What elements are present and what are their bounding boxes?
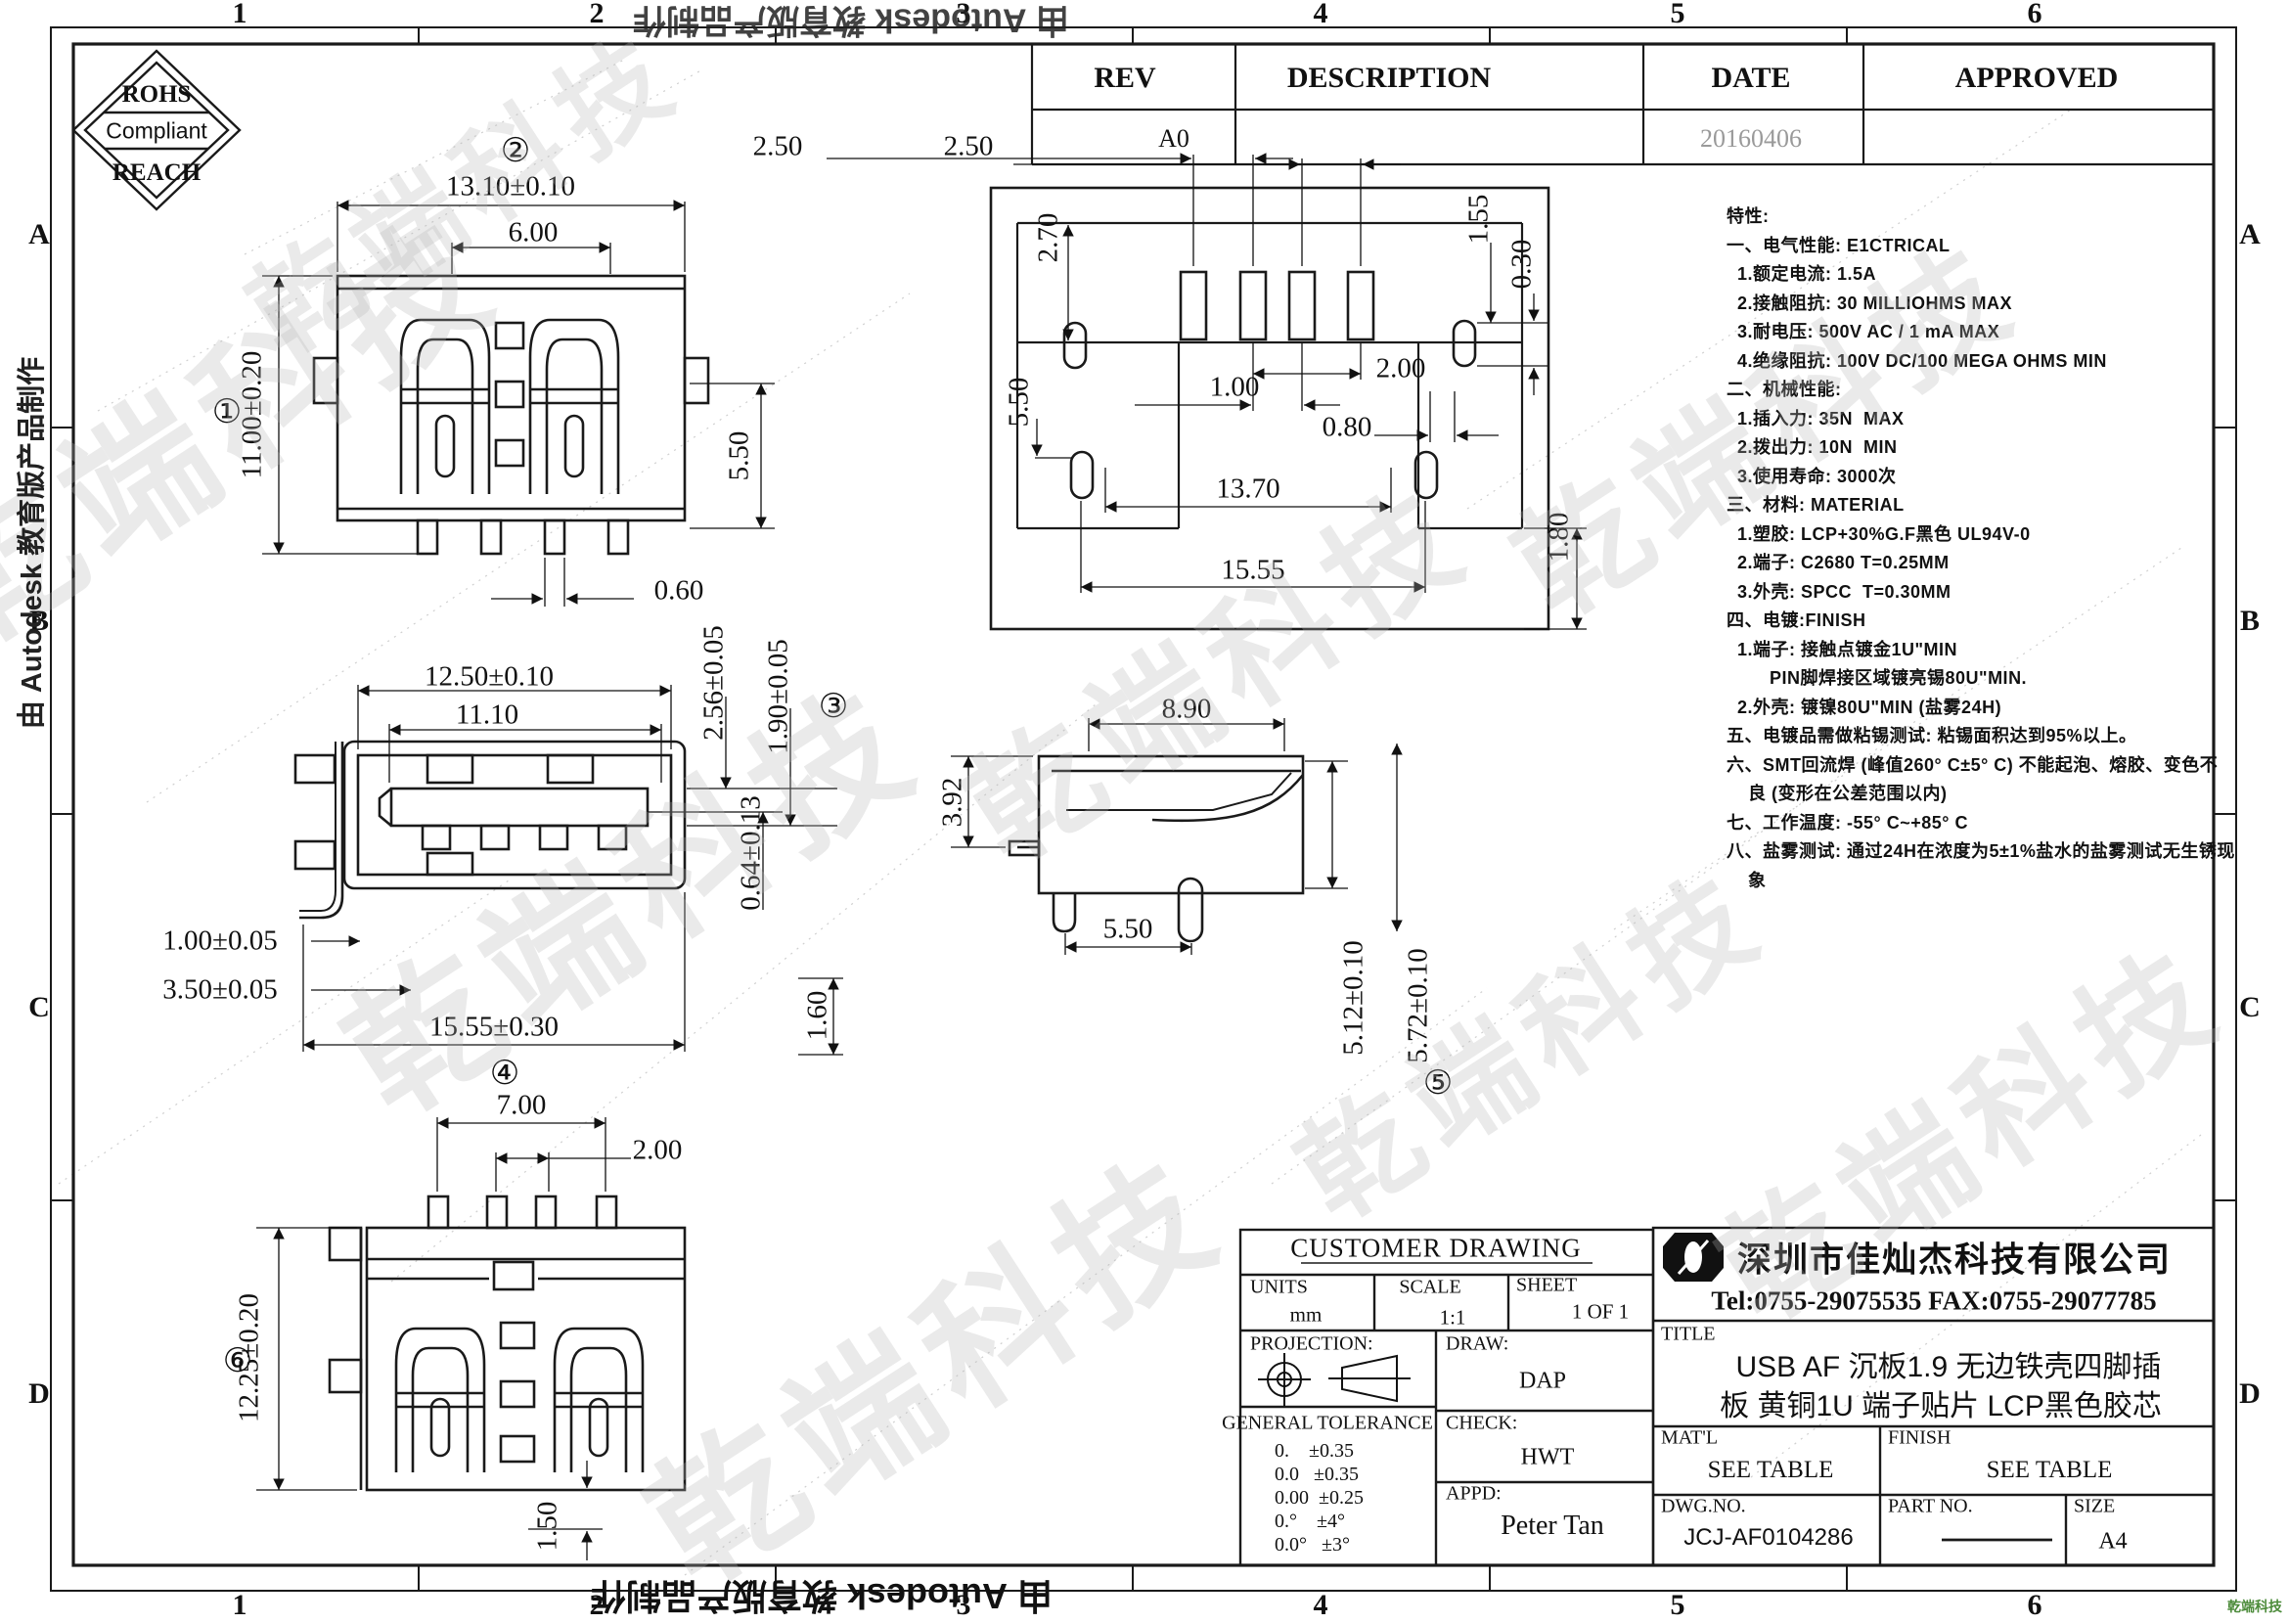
brand-watermark: 乾端科技 — [926, 434, 1499, 895]
drawing-sheet: { "grid": { "cols": ["1","2","3","4","5"… — [0, 0, 2288, 1618]
brand-watermark: 乾端科技 — [603, 1096, 1256, 1623]
autodesk-watermark-left: 由 Autodesk 教育版产品制作 — [9, 357, 50, 729]
brand-watermark: 乾端科技 — [1474, 190, 2046, 651]
autodesk-watermark-top: 由 Autodesk 教育版产品制作 — [633, 0, 1069, 48]
brand-watermarks: 乾端科技乾端科技乾端科技乾端科技乾端科技乾端科技乾端科技乾端科技 — [0, 0, 2288, 1618]
brand-watermark: 乾端科技 — [299, 626, 953, 1153]
autodesk-watermark-bottom: 由 Autodesk 教育版产品制作 — [591, 1573, 1053, 1624]
corner-brand-mark: 乾端科技 — [2227, 1597, 2282, 1616]
